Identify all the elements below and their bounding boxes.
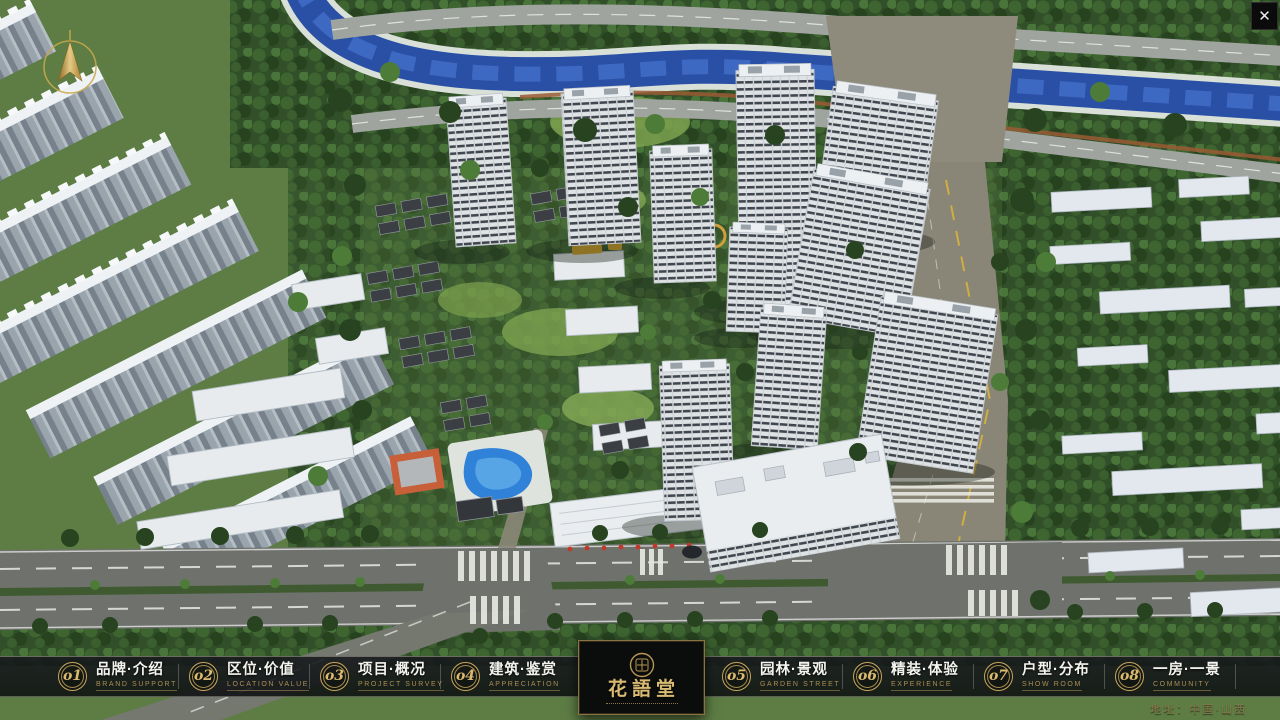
menu-label-zh: 建筑·鉴赏: [489, 662, 560, 679]
masterplan-viewport[interactable]: [0, 0, 1280, 720]
project-logo[interactable]: 花語堂: [578, 640, 705, 715]
menu-divider: [842, 664, 843, 689]
menu-badge-5: o5: [722, 662, 751, 691]
menu-item-view[interactable]: o8 一房·一景COMMUNITY: [1115, 662, 1235, 691]
menu-label-en: PROJECT SURVEY: [358, 681, 444, 691]
logo-name: 花語堂: [603, 680, 680, 699]
logo-subtitle-rule: [606, 703, 678, 704]
compass-icon: [38, 28, 102, 100]
menu-item-architecture[interactable]: o4 建筑·鉴赏APPRECIATION: [451, 662, 571, 691]
menu-label-en: GARDEN STREET: [760, 681, 840, 691]
menu-label-en: APPRECIATION: [489, 681, 560, 691]
menu-label-zh: 园林·景观: [760, 662, 840, 679]
menu-badge-7: o7: [984, 662, 1013, 691]
menu-divider: [440, 664, 441, 689]
menu-group-right: o5 园林·景观GARDEN STREET o6 精装·体验EXPERIENCE…: [706, 657, 1246, 696]
menu-label-zh: 区位·价值: [227, 662, 309, 679]
menu-badge-6: o6: [853, 662, 882, 691]
menu-label-zh: 户型·分布: [1022, 662, 1090, 679]
menu-label-zh: 精装·体验: [891, 662, 959, 679]
menu-item-brand[interactable]: o1 品牌·介绍BRAND SUPPORT: [58, 662, 178, 691]
menu-badge-8: o8: [1115, 662, 1144, 691]
menu-divider: [973, 664, 974, 689]
logo-seal-icon: [629, 652, 655, 678]
menu-label-zh: 项目·概况: [358, 662, 440, 679]
menu-group-left: o1 品牌·介绍BRAND SUPPORT o2 区位·价值LOCATION V…: [0, 657, 578, 696]
sales-presentation-window: ✕ o1 品牌·介绍BRAND SUPPORT o2 区位·价值LOCATION…: [0, 0, 1280, 720]
menu-divider: [1235, 664, 1236, 689]
menu-item-interior[interactable]: o6 精装·体验EXPERIENCE: [853, 662, 973, 691]
menu-label-zh: 一房·一景: [1153, 662, 1221, 679]
menu-label-en: COMMUNITY: [1153, 681, 1211, 691]
menu-badge-2: o2: [189, 662, 218, 691]
address-text: 地址：中国·山西: [1150, 701, 1247, 717]
menu-label-en: BRAND SUPPORT: [96, 681, 177, 691]
close-button[interactable]: ✕: [1251, 2, 1278, 30]
menu-item-location[interactable]: o2 区位·价值LOCATION VALUE: [189, 662, 309, 691]
menu-divider: [309, 664, 310, 689]
masterplan-render: [0, 0, 1280, 720]
menu-label-en: EXPERIENCE: [891, 681, 952, 691]
menu-divider: [178, 664, 179, 689]
close-icon: ✕: [1258, 9, 1271, 24]
menu-label-en: LOCATION VALUE: [227, 681, 309, 691]
menu-divider: [1104, 664, 1105, 689]
menu-item-project[interactable]: o3 项目·概况PROJECT SURVEY: [320, 662, 440, 691]
menu-item-floorplan[interactable]: o7 户型·分布SHOW ROOM: [984, 662, 1104, 691]
menu-badge-3: o3: [320, 662, 349, 691]
menu-label-en: SHOW ROOM: [1022, 681, 1082, 691]
menu-item-garden[interactable]: o5 园林·景观GARDEN STREET: [722, 662, 842, 691]
menu-badge-1: o1: [58, 662, 87, 691]
menu-badge-4: o4: [451, 662, 480, 691]
menu-label-zh: 品牌·介绍: [96, 662, 177, 679]
